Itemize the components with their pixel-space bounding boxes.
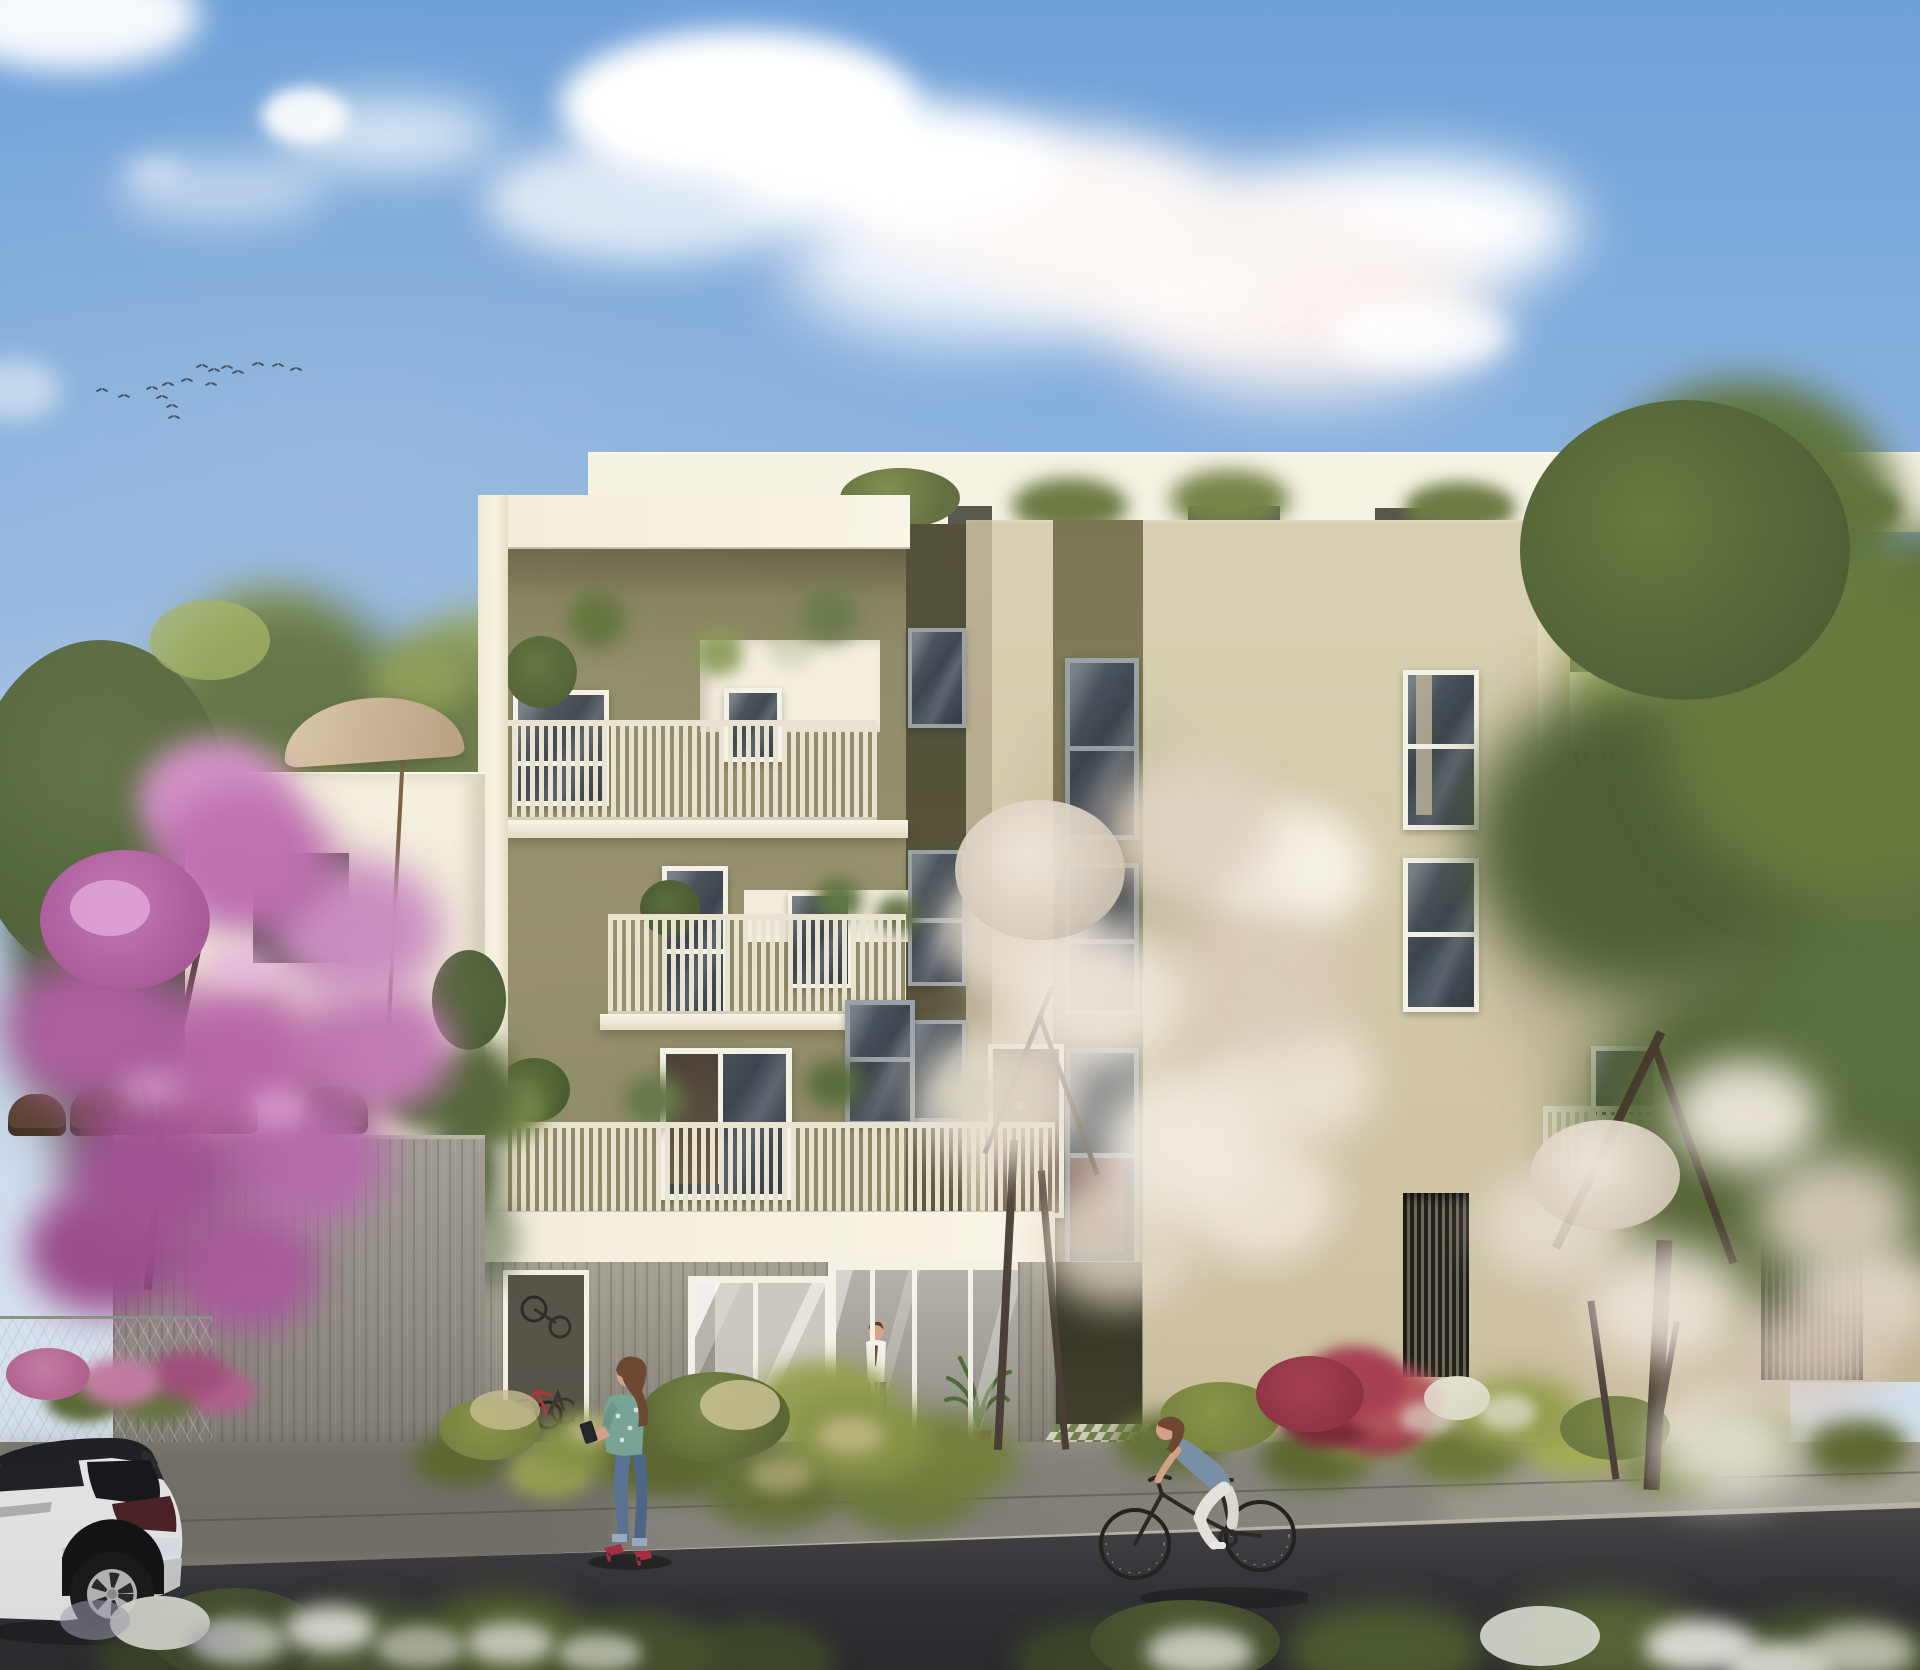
floor1-terrace-railing: [485, 1122, 1055, 1218]
white-blossom-canopy: [1530, 1120, 1680, 1230]
recessed-balcony-slab: [1538, 844, 1792, 874]
background-trees-left-sunlit: [150, 600, 270, 680]
white-blossom-canopy: [955, 800, 1125, 940]
cloud-small: [262, 88, 348, 144]
terrace-chair: [300, 1086, 368, 1134]
annex-window-opening: [253, 853, 349, 963]
white-flower-sprigs: [1424, 1376, 1490, 1420]
balcony-plants: [505, 636, 577, 708]
woman-with-phone: [552, 1336, 702, 1576]
tall-tree-by-annex: [432, 950, 506, 1050]
interior-lamp: [1015, 1101, 1025, 1111]
pink-blossom-highlights: [70, 880, 150, 936]
foreground-hedge-blossom-right: [1480, 1606, 1600, 1666]
floor3-slab: [480, 820, 908, 838]
dry-grass-accents: [700, 1380, 780, 1430]
curtain: [1416, 675, 1432, 815]
strip-window-curtain: [1065, 1048, 1139, 1266]
narrow-window: [1403, 858, 1479, 1012]
terrace-chair: [8, 1094, 66, 1136]
foreground-hedge-purple-tint: [60, 1600, 130, 1640]
frame-top-beam: [478, 495, 910, 549]
cloud-main: [560, 30, 920, 180]
ground-slat-gate: [1761, 1178, 1863, 1380]
cyclist: [1078, 1366, 1308, 1626]
big-tree-canopy: [1520, 400, 1850, 700]
gap-window: [908, 628, 966, 728]
frame-bottom-beam: [478, 1212, 1055, 1262]
architectural-rendering: [0, 0, 1920, 1670]
narrow-window: [1403, 670, 1479, 830]
floor3-balcony-railing: [485, 720, 877, 824]
wing-balcony-railing: [1798, 952, 1920, 1040]
dry-grass-accents: [470, 1390, 540, 1430]
recessed-balcony-railing: [1570, 746, 1760, 848]
balcony-plants: [498, 1058, 570, 1122]
wing-balcony-railing: [1798, 688, 1920, 778]
floor1-window: [845, 1000, 915, 1126]
ground-slat-gate: [1403, 1193, 1469, 1377]
cloud-wisp-right: [1330, 300, 1510, 370]
gap-window: [908, 1020, 966, 1122]
